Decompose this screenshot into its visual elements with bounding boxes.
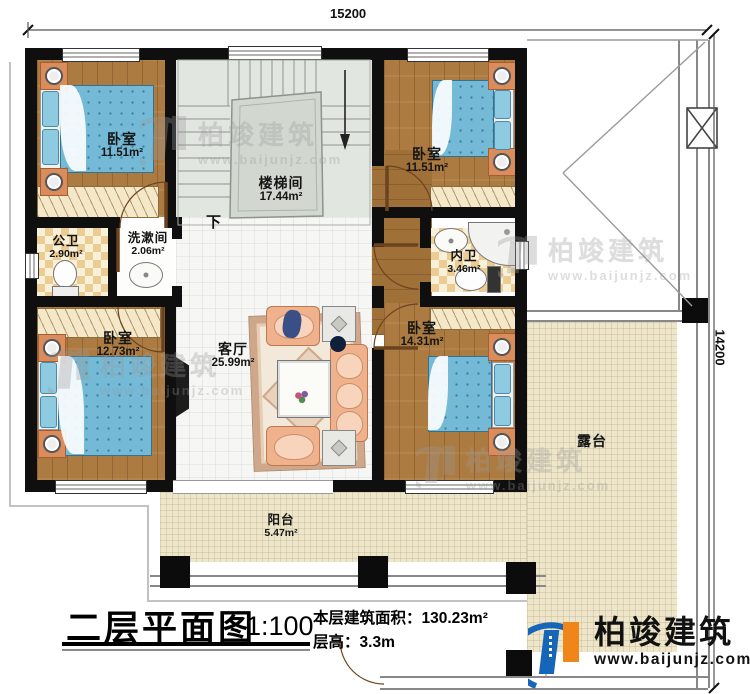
lamp-icon <box>493 338 511 356</box>
nightstand <box>488 62 516 90</box>
eave-line <box>147 505 149 602</box>
terrace-railing <box>527 310 708 312</box>
lamp-icon <box>493 153 511 171</box>
wall-segment <box>372 348 384 492</box>
wall-segment <box>515 48 527 323</box>
wall-segment <box>372 48 384 166</box>
window <box>228 46 322 60</box>
plan-scale: 1:100 <box>246 611 314 642</box>
window <box>407 48 489 62</box>
pillow <box>494 364 511 394</box>
pillow <box>494 121 511 150</box>
wall-segment <box>108 217 117 307</box>
person <box>330 336 346 352</box>
room-label-terrace: 露台 <box>577 433 607 449</box>
floor-plan: 下 <box>0 0 750 694</box>
room-label-bedroom-ml: 卧室12.73m² <box>97 330 140 359</box>
side-table <box>322 430 356 466</box>
tv <box>176 357 189 417</box>
window <box>515 241 529 270</box>
pillow <box>40 362 57 394</box>
pillow <box>40 396 57 428</box>
nightstand <box>488 428 516 456</box>
eave-line <box>9 62 11 507</box>
sink <box>129 262 163 288</box>
armchair <box>266 426 320 466</box>
title-underline <box>62 642 310 646</box>
pillow <box>42 91 59 127</box>
floor-area-text: 本层建筑面积：130.23m² <box>313 606 488 628</box>
lamp-icon <box>493 433 511 451</box>
column <box>358 556 388 588</box>
balcony-door-opening <box>173 480 333 494</box>
wall-segment <box>420 296 527 307</box>
nightstand <box>488 148 516 176</box>
room-label-stairwell: 楼梯间17.44m² <box>259 175 304 204</box>
column <box>160 556 190 588</box>
room-label-balcony: 阳台5.47m² <box>264 513 297 539</box>
brand-logo: 柏竣建筑 www.baijunjz.com <box>528 616 750 690</box>
terrace-railing <box>696 40 698 688</box>
toilet <box>52 260 78 298</box>
nightstand <box>488 333 516 361</box>
pillow <box>494 396 511 426</box>
floor-height-text: 层高：3.3m <box>313 630 395 652</box>
room-label-bedroom-tr: 卧室11.51m² <box>406 146 448 175</box>
room-label-washroom: 洗漱间2.06m² <box>128 231 169 257</box>
window <box>25 253 39 279</box>
wall-segment <box>165 48 176 228</box>
pillow <box>494 90 511 119</box>
room-label-living-room: 客厅25.99m² <box>212 341 255 370</box>
room-label-public-bath: 公卫2.90m² <box>49 234 82 260</box>
wall-segment <box>420 218 431 248</box>
column <box>506 562 536 594</box>
window <box>62 48 140 62</box>
wall-segment <box>333 480 405 492</box>
wardrobe <box>430 186 517 209</box>
wall-segment <box>25 217 120 228</box>
lamp-icon <box>45 67 63 85</box>
wall-segment <box>165 296 176 492</box>
nightstand <box>40 168 68 196</box>
window <box>55 480 147 494</box>
dimension-top: 15200 <box>330 6 366 21</box>
balcony-floor <box>160 492 545 562</box>
title-underline-2 <box>62 649 310 651</box>
lamp-icon <box>493 67 511 85</box>
terrace-floor <box>527 322 677 652</box>
room-label-bedroom-tl: 卧室11.51m² <box>101 131 143 160</box>
wall-segment <box>515 310 527 492</box>
wall-segment <box>372 296 384 308</box>
wall-segment <box>372 207 527 218</box>
room-label-ensuite-bath: 内卫3.46m² <box>447 249 480 275</box>
lamp-icon <box>43 339 61 357</box>
dimension-right: 14200 <box>713 329 728 365</box>
room-label-bedroom-br: 卧室14.31m² <box>401 320 444 349</box>
flower-vase <box>293 390 311 404</box>
wall-segment <box>172 217 182 239</box>
balcony-railing <box>150 575 546 577</box>
window <box>405 480 494 494</box>
terrace-railing <box>678 40 680 310</box>
column <box>682 298 708 323</box>
building-logo-icon <box>528 616 586 690</box>
coffee-table <box>277 360 331 418</box>
terrace-railing <box>708 40 710 688</box>
wall-segment <box>25 480 55 492</box>
lamp-icon <box>43 435 61 453</box>
eave-line <box>9 505 149 507</box>
balcony-railing <box>150 585 546 587</box>
wall-segment <box>145 480 173 492</box>
wall-segment <box>25 296 182 307</box>
stair-down-label: 下 <box>206 211 221 232</box>
pillow <box>42 129 59 165</box>
terrace-railing <box>527 320 708 322</box>
wall-segment <box>372 207 384 247</box>
lamp-icon <box>45 173 63 191</box>
sofa <box>330 344 368 442</box>
